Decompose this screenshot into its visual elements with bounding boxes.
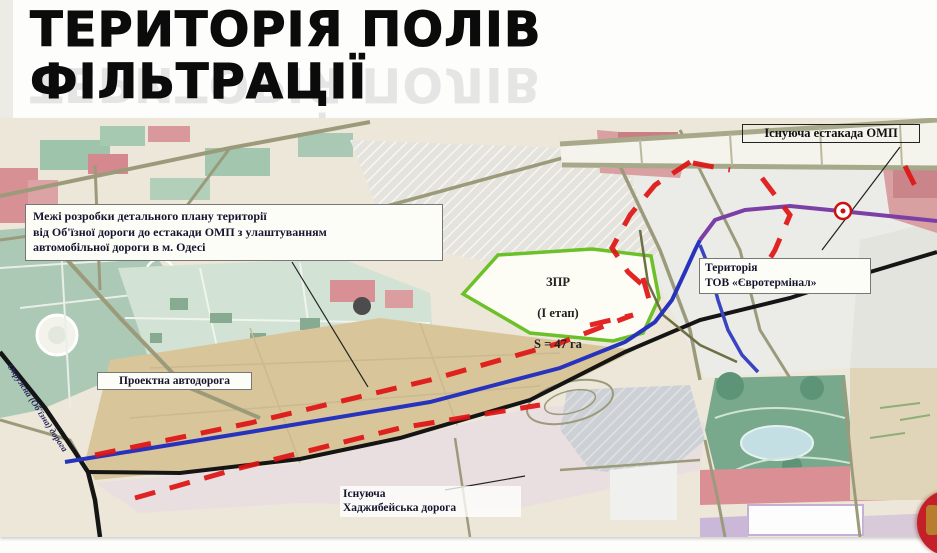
khadzhibey-road-label: Існуюча Хаджибейська дорога xyxy=(340,486,521,517)
boundary-note-box: Межі розробки детального плану території… xyxy=(25,204,443,261)
zpr-stage: (І етап) xyxy=(498,306,618,322)
zpr-title: ЗПР xyxy=(498,275,618,291)
filtration-fields-map-art xyxy=(0,118,937,537)
logo-emblem xyxy=(926,505,937,535)
zpr-area: S = 47 га xyxy=(498,337,618,353)
slide-title-line2: ФІЛЬТРАЦІЇ xyxy=(30,54,367,110)
euroterminal-label: Територія ТОВ «Євротермінал» xyxy=(699,258,871,294)
project-road-label: Проектна автодорога xyxy=(97,372,252,390)
presentation-slide: ТЕРИТОРІЯ ПОЛІВ ФІЛЬТРАЦІЇ ТЕРИТОРІЯ ПОЛ… xyxy=(0,0,937,553)
existing-overpass-label: Існуюча естакада ОМП xyxy=(742,124,920,143)
territory-map: Межі розробки детального плану території… xyxy=(0,118,937,537)
slide-title-line1: ТЕРИТОРІЯ ПОЛІВ xyxy=(30,2,541,58)
red-circle-symbol xyxy=(835,203,851,219)
left-margin-strip xyxy=(0,0,13,118)
zpr-site-label: ЗПР (І етап) S = 47 га xyxy=(498,259,618,368)
